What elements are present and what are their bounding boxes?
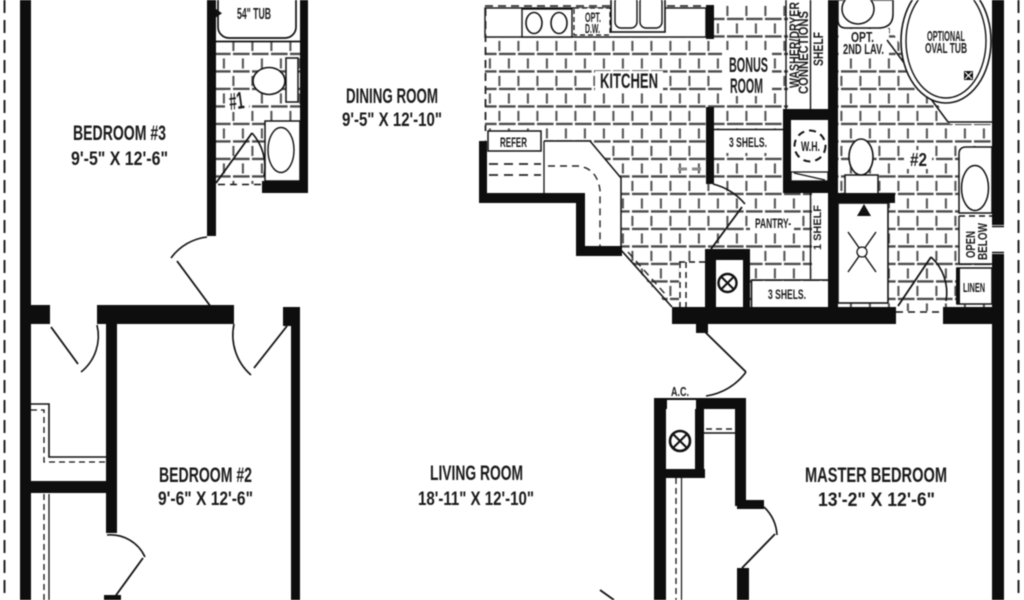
svg-text:3 SHELS.: 3 SHELS. [729,134,767,150]
svg-text:DINING ROOM: DINING ROOM [346,85,438,108]
svg-text:PANTRY-: PANTRY- [755,215,791,231]
svg-text:D.W.: D.W. [585,21,600,36]
svg-text:BEDROOM #2: BEDROOM #2 [159,464,252,487]
svg-text:54" TUB: 54" TUB [237,6,271,23]
svg-text:KITCHEN: KITCHEN [600,70,658,93]
svg-text:A.C.: A.C. [671,384,689,399]
svg-text:MASTER BEDROOM: MASTER BEDROOM [805,464,947,487]
svg-text:ROOM: ROOM [730,75,763,98]
svg-text:W.H.: W.H. [801,138,820,154]
svg-text:13'-2" X 12'-6": 13'-2" X 12'-6" [818,490,935,511]
svg-text:3 SHELS.: 3 SHELS. [768,286,806,302]
svg-text:BONUS: BONUS [729,54,768,77]
svg-text:OVAL TUB: OVAL TUB [925,40,967,57]
svg-text:9'-6" X 12'-6": 9'-6" X 12'-6" [158,489,253,510]
svg-text:LINEN: LINEN [963,280,985,295]
svg-text:BELOW: BELOW [975,222,990,260]
svg-text:#2: #2 [910,150,927,170]
svg-text:SHELF: SHELF [811,32,826,66]
svg-text:9'-5" X 12'-6": 9'-5" X 12'-6" [71,149,168,170]
svg-text:BEDROOM #3: BEDROOM #3 [73,122,166,145]
svg-text:2ND LAV.: 2ND LAV. [843,41,884,58]
svg-text:CONNECTIONS: CONNECTIONS [796,11,811,94]
svg-text:18'-11" X 12'-10": 18'-11" X 12'-10" [418,489,534,510]
svg-text:9'-5" X 12'-10": 9'-5" X 12'-10" [342,110,442,131]
svg-text:REFER: REFER [500,134,527,150]
svg-text:LIVING ROOM: LIVING ROOM [430,462,523,485]
svg-text:1 SHELF: 1 SHELF [812,205,824,250]
